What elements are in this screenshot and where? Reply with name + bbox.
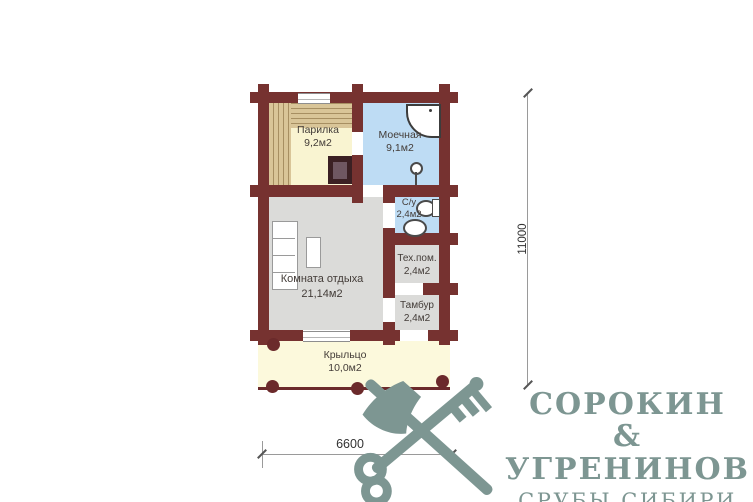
- room-label-parilka: Парилка 9,2м2: [278, 124, 358, 150]
- wall-column-seg: [383, 322, 395, 345]
- log-end: [450, 185, 458, 197]
- log-end: [450, 283, 458, 295]
- wall-bottom-seg: [258, 330, 303, 341]
- room-area: 2,4м2: [387, 209, 431, 221]
- brand-name-line1: СОРОКИН &: [503, 389, 752, 453]
- room-label-su: С/у 2,4м2: [387, 197, 431, 221]
- dimension-tick: [523, 88, 533, 98]
- log-end: [439, 84, 450, 92]
- wall-divider-seg: [352, 155, 363, 203]
- log-end: [250, 185, 258, 197]
- drain-stem: [415, 172, 417, 185]
- toilet-tank: [432, 199, 440, 217]
- log-end: [450, 330, 458, 341]
- log-end: [352, 84, 363, 92]
- room-name: Тамбур: [387, 299, 447, 312]
- room-name: Парилка: [278, 124, 358, 137]
- window-pane: [298, 99, 330, 100]
- log-end: [250, 330, 258, 341]
- sink-icon: [403, 219, 427, 237]
- sofa-cushion-line: [273, 238, 295, 239]
- room-name: Моечная: [360, 129, 440, 142]
- brand-tagline: СРУБЫ СИБИРИ: [503, 487, 752, 502]
- window-pane: [303, 337, 350, 338]
- log-end: [450, 233, 458, 245]
- room-label-tambur: Тамбур 2,4м2: [387, 299, 447, 325]
- room-label-tehpom: Тех.пом. 2,4м2: [387, 252, 447, 278]
- room-label-kryltso: Крыльцо 10,0м2: [305, 349, 385, 375]
- table: [306, 237, 321, 268]
- brand-name-line2: УГРЕНИНОВ: [503, 453, 752, 487]
- window-parilka: [298, 93, 330, 104]
- wall-tambur-top: [423, 283, 450, 295]
- sauna-stove-door: [333, 162, 347, 179]
- door-opening-entrance: [400, 331, 428, 341]
- wall-bottom-seg: [428, 330, 450, 341]
- room-name: С/у: [387, 197, 431, 209]
- porch-post: [267, 338, 280, 351]
- sofa-cushion-line: [273, 255, 295, 256]
- room-area: 9,1м2: [360, 142, 440, 155]
- shower-cabin-dot: [429, 109, 432, 112]
- brand-block: СОРОКИН & УГРЕНИНОВ СРУБЫ СИБИРИ: [503, 389, 752, 502]
- door-opening-moechnaya: [363, 185, 383, 197]
- door-opening-tehpom: [395, 283, 423, 295]
- room-name: Крыльцо: [305, 349, 385, 362]
- room-area: 9,2м2: [278, 137, 358, 150]
- floorplan-page: Парилка 9,2м2 Моечная 9,1м2 С/у 2,4м2 Те…: [0, 0, 753, 502]
- room-label-moechnaya: Моечная 9,1м2: [360, 129, 440, 155]
- wall-left: [258, 92, 269, 345]
- dimension-label-height: 11000: [517, 209, 529, 269]
- room-area: 21,14м2: [262, 287, 382, 302]
- room-name: Комната отдыха: [262, 272, 382, 287]
- window-komnata: [303, 331, 350, 342]
- porch-post: [266, 380, 279, 393]
- room-name: Тех.пом.: [387, 252, 447, 265]
- axe-key-logo-icon: [345, 373, 515, 502]
- log-end: [250, 92, 258, 103]
- room-area: 2,4м2: [387, 265, 447, 278]
- log-end: [258, 84, 269, 92]
- room-area: 2,4м2: [387, 312, 447, 325]
- room-label-komnata: Комната отдыха 21,14м2: [262, 272, 382, 302]
- log-end: [450, 92, 458, 103]
- wall-mid-seg: [258, 185, 363, 197]
